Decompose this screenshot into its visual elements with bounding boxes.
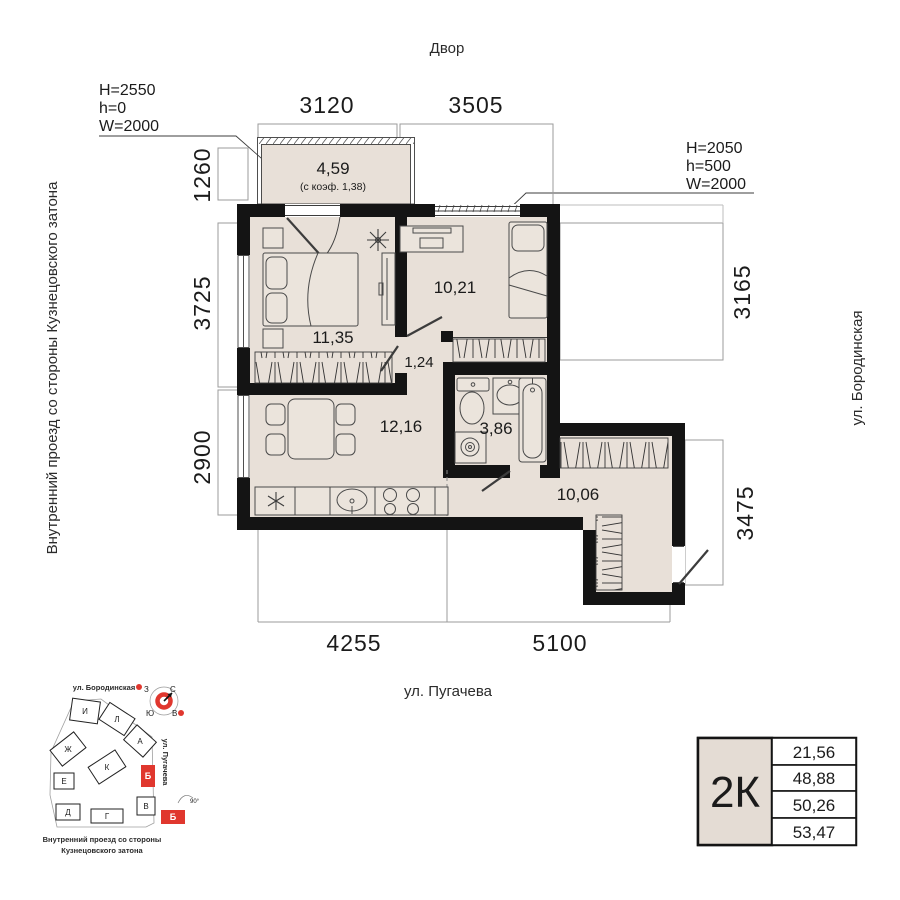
window-left-bedroom-icon: [237, 255, 250, 348]
chair-icon: [266, 404, 285, 425]
compass-north: С: [170, 685, 176, 694]
building-label: Г: [105, 812, 110, 821]
compass-south: Ю: [146, 709, 154, 718]
dimension-top-1: 3120: [299, 92, 354, 118]
annotation-left-line2: h=0: [99, 100, 126, 117]
compass-west: З: [144, 685, 149, 694]
dimension-top-2: 3505: [448, 92, 503, 118]
minimap-building: Ж: [50, 732, 86, 766]
nightstand-icon: [263, 329, 283, 348]
minimap-street-right: ул. Пугачева: [161, 739, 170, 787]
annotation-right-line3: W=2000: [686, 176, 746, 193]
building-label: Ж: [64, 745, 72, 754]
nightstand-icon: [263, 228, 283, 248]
annotation-right-line1: H=2050: [686, 140, 743, 157]
room-label-balcony-coef: (с коэф. 1,38): [300, 181, 366, 193]
room-label-kitchen-living: 12,16: [380, 417, 423, 436]
building-label: Б: [145, 771, 152, 781]
minimap-caption-2: Кузнецовского затона: [61, 846, 143, 855]
street-left-label: Внутренний проезд со стороны Кузнецовско…: [44, 181, 61, 555]
chair-icon: [266, 434, 285, 455]
room-label-hall: 1,24: [404, 354, 433, 371]
building-label: И: [82, 707, 88, 716]
building-label: Е: [61, 777, 66, 786]
wardrobe-icon: [255, 352, 392, 383]
chair-icon: [336, 434, 355, 455]
building-label: Л: [114, 715, 119, 724]
summary-row-value: 53,47: [793, 823, 836, 842]
dimension-left-3: 2900: [189, 429, 215, 484]
room-label-hallway: 10,06: [557, 485, 600, 504]
summary-row-value: 48,88: [793, 769, 836, 788]
building-label: В: [143, 802, 148, 811]
minimap-building: Е: [54, 773, 74, 789]
annotation-left-line1: H=2550: [99, 82, 156, 99]
dimension-right-1: 3165: [729, 264, 755, 319]
minimap-building: К: [88, 750, 126, 784]
building-label: Б: [170, 812, 177, 822]
courtyard-label: Двор: [430, 40, 465, 57]
wardrobe-icon: [596, 515, 622, 590]
dimension-bottom-1: 4255: [326, 630, 381, 656]
window-left-kitchen-icon: [237, 395, 250, 478]
apartment-summary-table: 2К 21,56 48,88 50,26 53,47: [698, 738, 856, 845]
minimap-street-top: ул. Бородинская: [73, 683, 135, 692]
dimension-left-2: 3725: [189, 275, 215, 330]
dresser-icon: [400, 226, 463, 252]
bed-icon: [263, 253, 358, 326]
annotation-right-line2: h=500: [686, 158, 731, 175]
building-label: К: [105, 763, 110, 772]
building-label: Д: [65, 808, 71, 817]
minimap-building-highlight: Б: [161, 810, 185, 824]
compass-east: В: [172, 709, 177, 718]
minimap-caption-1: Внутренний проезд со стороны: [43, 835, 162, 844]
room-label-bedroom: 11,35: [312, 328, 353, 347]
site-minimap: ул. Бородинская ул. Пугачева Внутренний …: [43, 683, 200, 855]
minimap-building: А: [124, 725, 157, 757]
minimap-building: Г: [91, 809, 123, 823]
floorplan-canvas: Двор Внутренний проезд со стороны Кузнец…: [0, 0, 900, 900]
floorplan-page: Двор Внутренний проезд со стороны Кузнец…: [0, 0, 900, 900]
street-right-label: ул. Бородинская: [849, 310, 866, 425]
minimap-building: В: [137, 797, 155, 815]
room-label-bathroom: 3,86: [479, 419, 512, 438]
summary-row-value: 21,56: [793, 743, 836, 762]
apartment-type: 2К: [710, 768, 760, 817]
plant-icon: [367, 229, 389, 251]
minimap-building-highlight: Б: [141, 765, 155, 787]
dimension-left-1: 1260: [189, 147, 215, 202]
dimension-bottom-2: 5100: [532, 630, 587, 656]
window-top-icon: [435, 204, 520, 217]
compass-icon: С З Ю В: [136, 684, 184, 718]
minimap-building: И: [70, 698, 101, 724]
window-annotation-right: H=2050 h=500 W=2000: [505, 140, 754, 213]
building-label: А: [137, 737, 143, 746]
angle-note: 90°: [190, 799, 200, 805]
room-label-bedroom2: 10,21: [434, 278, 477, 297]
dining-table-icon: [288, 399, 334, 459]
chair-icon: [336, 404, 355, 425]
dimension-right-2: 3475: [732, 485, 758, 540]
minimap-building: Д: [56, 804, 80, 820]
kitchen-counter: [255, 487, 448, 515]
bed-icon: [509, 222, 547, 318]
bathtub-icon: [519, 378, 546, 462]
minimap-building: Л: [99, 702, 135, 735]
entry-door-icon: [672, 546, 708, 584]
summary-row-value: 50,26: [793, 796, 836, 815]
room-label-balcony: 4,59: [316, 159, 349, 178]
annotation-left-line3: W=2000: [99, 118, 159, 135]
wardrobe-icon: [560, 438, 668, 468]
street-bottom-label: ул. Пугачева: [404, 683, 493, 700]
wardrobe-icon: [453, 339, 545, 362]
